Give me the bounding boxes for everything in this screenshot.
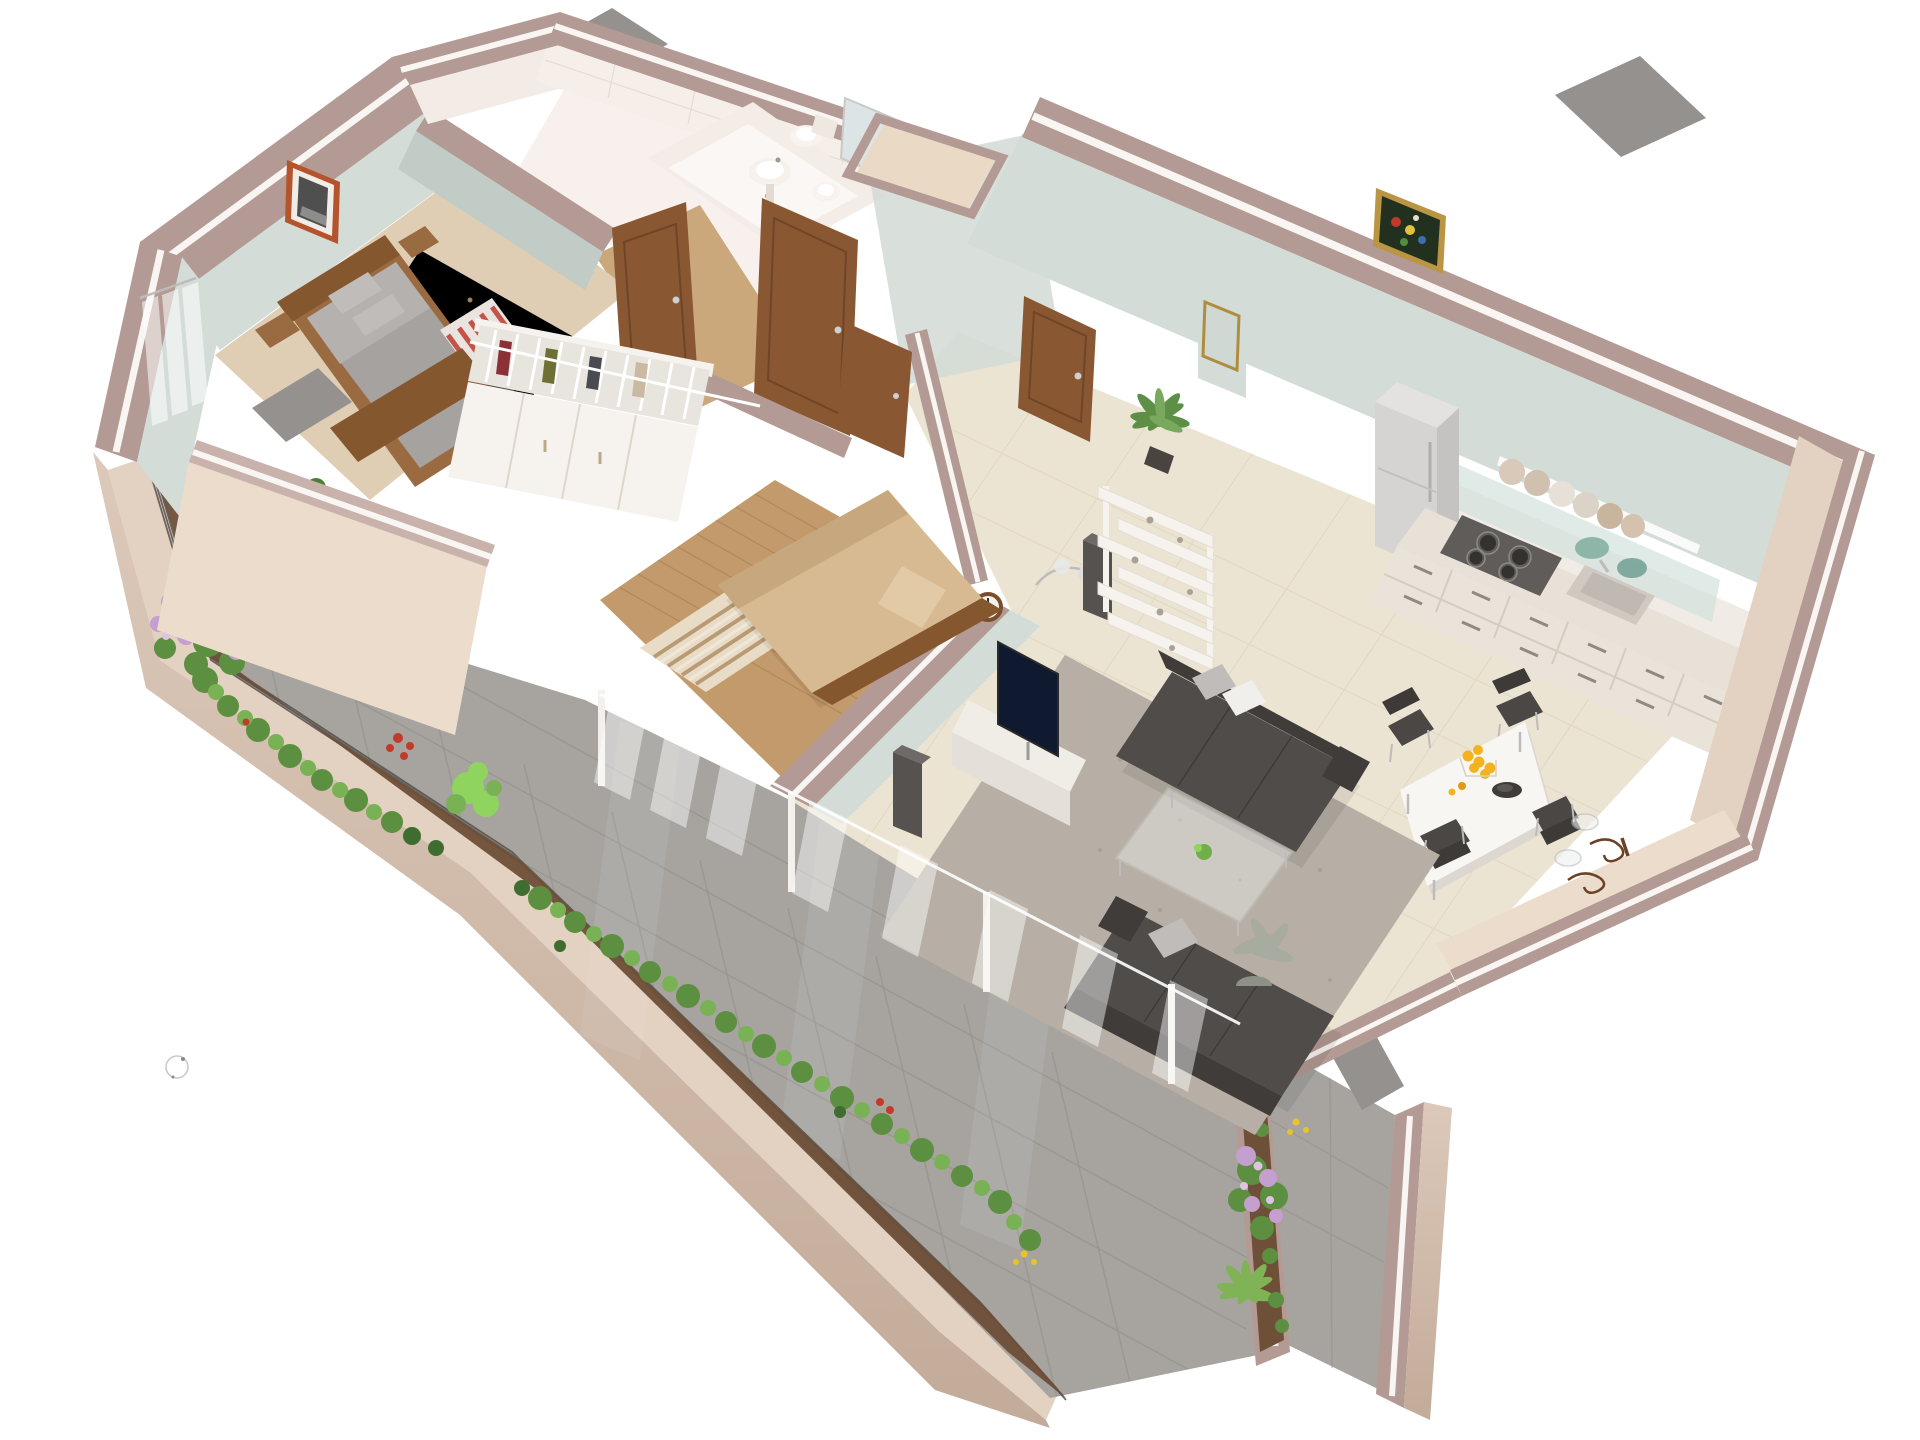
plate bbox=[1549, 481, 1575, 507]
stub-entry-top-right bbox=[1555, 56, 1706, 157]
plate bbox=[1597, 503, 1623, 529]
closet-sheer-curtain bbox=[522, 530, 578, 662]
plate bbox=[1573, 492, 1599, 518]
plate bbox=[1621, 514, 1645, 538]
glass-bowl bbox=[1617, 558, 1647, 578]
apartment-3d-svg bbox=[0, 0, 1920, 1440]
floor-plan-render bbox=[0, 0, 1920, 1440]
plate bbox=[1524, 470, 1550, 496]
faint-circle-marker bbox=[166, 1056, 188, 1079]
glass-bowl bbox=[1575, 537, 1609, 559]
plate bbox=[1499, 459, 1525, 485]
bidet bbox=[812, 182, 840, 202]
